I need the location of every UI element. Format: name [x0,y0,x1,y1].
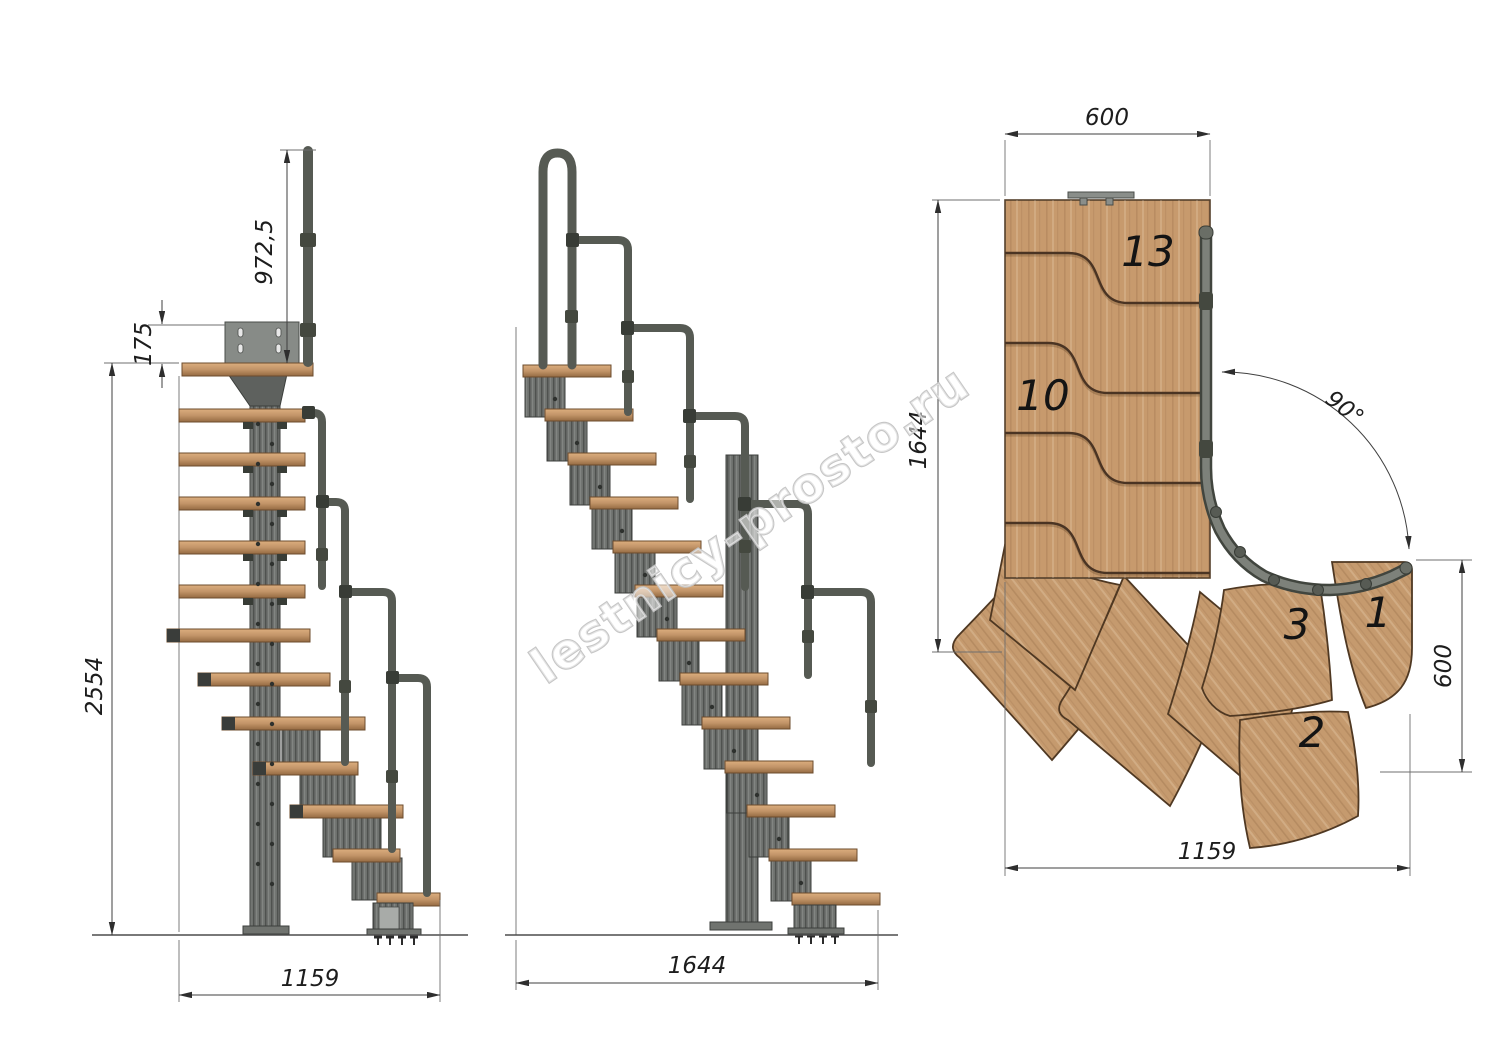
tread-bracket [243,422,253,429]
step-number-13: 13 [1121,227,1174,276]
rail-joint [1269,575,1280,586]
bolt-dot [256,502,260,506]
tread [590,497,678,509]
rail-joint [1235,547,1246,558]
bolt-dot [575,441,579,445]
rail-clamp [339,585,352,598]
front-mount-plate [225,322,299,366]
tread-end-cap [222,717,235,730]
bolt-dot [256,662,260,666]
tread [179,585,305,598]
tread [769,849,857,861]
front-column-base-plate [243,926,289,934]
rail-clamp [386,671,399,684]
bolt-dot [598,485,602,489]
front-base-flange [367,929,421,935]
dim-total-height-label: 2554 [82,657,108,716]
bolt-dot [256,702,260,706]
tread [179,497,305,510]
tread-bracket [277,466,287,473]
bolt-dot [687,661,691,665]
bolt-dot [755,793,759,797]
tread [680,673,768,685]
tread [179,409,305,422]
bolt-dot [710,705,714,709]
rail-clamp [302,406,315,419]
tread [182,363,313,376]
plan-bracket-foot [1106,198,1113,205]
dim-front-width-label: 1159 [281,966,340,992]
bolt-dot [256,582,260,586]
bolt-dot [256,422,260,426]
bolt-dot [799,881,803,885]
rail-clamp [683,409,696,423]
bolt-dot [732,749,736,753]
dim-plan-width-label: 1159 [1178,839,1237,865]
plan-tread-3 [1202,584,1332,716]
dim-exit-width-label: 600 [1431,644,1457,688]
bolt-dot [256,782,260,786]
dim-plate-label: 175 [131,322,157,366]
rail-sleeve [684,455,696,468]
bolt-dot [270,482,274,486]
dim-depth-label: 1644 [668,953,727,979]
rail-sleeve [865,700,877,713]
rail-sleeve [386,770,398,783]
rail-clamp [621,321,634,335]
bolt-dot [270,842,274,846]
rail-sleeve [316,548,328,561]
tread [179,453,305,466]
bolt-dot [665,617,669,621]
drawing-canvas: 2554 972,5 175 1159 [0,0,1500,1061]
step-number-2: 2 [1299,708,1326,757]
bolt-dot [553,397,557,401]
rail-sleeve [300,233,316,247]
tread-bracket [243,598,253,605]
tread [747,805,835,817]
tread [657,629,745,641]
rail-sleeve [1199,292,1213,310]
rail-sleeve [300,323,316,337]
rail-end-cap [1400,562,1412,574]
bolt-dot [270,642,274,646]
side-base-module [794,905,836,931]
tread-bracket [277,598,287,605]
rail-sleeve [565,310,578,323]
tread [523,365,611,377]
rail-joint [1313,585,1324,596]
rail-top-cap [1199,226,1213,239]
rail-clamp [566,233,579,247]
tread-bracket [243,466,253,473]
side-base-flange [788,928,844,934]
tread [792,893,880,905]
bolt-dot [270,682,274,686]
step-number-3: 3 [1284,600,1311,649]
tread [702,717,790,729]
bolt-dot [256,822,260,826]
tread [290,805,403,818]
tread-bracket [277,422,287,429]
step-number-1: 1 [1365,588,1392,637]
tread-bracket [277,510,287,517]
front-base-panel [379,907,399,929]
tread-bracket [243,554,253,561]
tread-bracket [277,554,287,561]
dim-handrail-height-label: 972,5 [252,219,278,285]
bolt-dot [270,522,274,526]
bolt-dot [777,837,781,841]
rail-sleeve [622,370,634,383]
tread [568,453,656,465]
tread [179,541,305,554]
tread-bracket [243,510,253,517]
bolt-dot [256,542,260,546]
bolt-dot [270,602,274,606]
front-center-column [250,400,280,928]
tread-end-cap [167,629,180,642]
dim-flight-width-label: 600 [1085,105,1129,131]
rail-joint [1211,507,1222,518]
rail-clamp [316,495,329,508]
plan-bracket-foot [1080,198,1087,205]
bolt-dot [256,462,260,466]
staircase-technical-drawing: 2554 972,5 175 1159 [0,0,1500,1061]
bolt-dot [270,802,274,806]
tread [725,761,813,773]
bolt-dot [270,722,274,726]
step-number-10: 10 [1016,371,1069,420]
tread [167,629,310,642]
bolt-dot [270,442,274,446]
bolt-dot [270,882,274,886]
bolt-dot [270,762,274,766]
bolt-dot [256,742,260,746]
rail-sleeve [339,680,351,693]
rail-sleeve [802,630,814,643]
bolt-dot [256,862,260,866]
rail-sleeve [1199,440,1213,458]
tread [198,673,330,686]
side-column-base-plate [710,922,772,930]
bolt-dot [620,529,624,533]
bolt-dot [256,622,260,626]
tread [545,409,633,421]
tread-end-cap [198,673,211,686]
tread-end-cap [290,805,303,818]
bolt-dot [270,562,274,566]
rail-clamp [801,585,814,599]
plan-wall-bracket [1068,192,1134,198]
tread-end-cap [253,762,266,775]
